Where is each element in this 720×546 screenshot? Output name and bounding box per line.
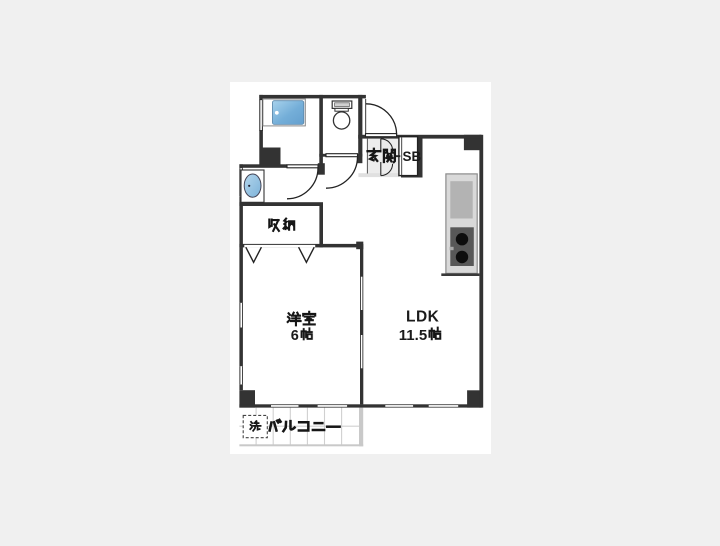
svg-text:LDK: LDK <box>406 309 440 326</box>
svg-text:6: 6 <box>291 328 299 344</box>
svg-text:11.5: 11.5 <box>399 327 427 344</box>
svg-text:SB: SB <box>403 149 422 164</box>
